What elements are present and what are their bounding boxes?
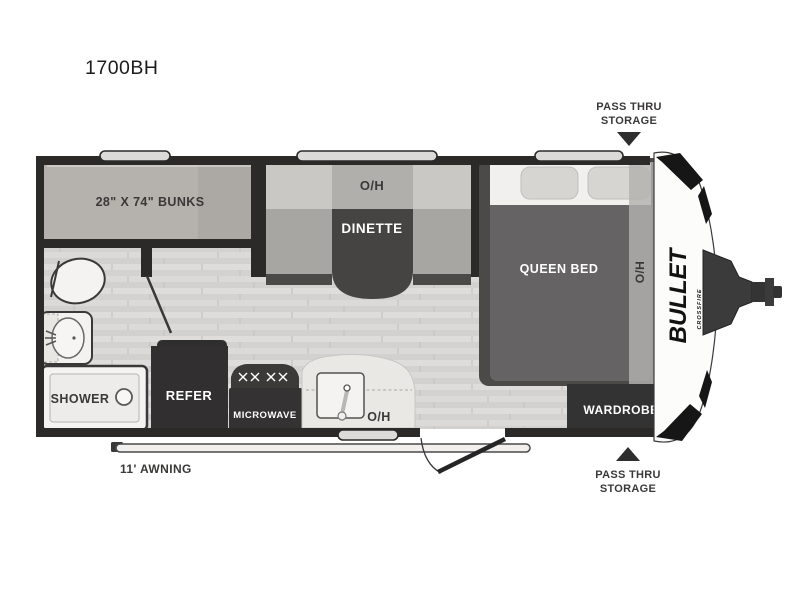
floorplan-svg: 1700BH PASS THRU STORAGE 28" X 74" BUNKS… bbox=[0, 0, 800, 600]
hitch bbox=[703, 250, 782, 335]
awning-label: 11' AWNING bbox=[120, 462, 192, 476]
page-title: 1700BH bbox=[85, 57, 158, 79]
dinette-label: DINETTE bbox=[341, 221, 402, 236]
bed-oh-label: O/H bbox=[633, 261, 647, 284]
dinette-oh-label: O/H bbox=[360, 178, 384, 193]
dinette-bench-front-left bbox=[266, 274, 332, 285]
pass-thru-callout-top: PASS THRU STORAGE bbox=[596, 101, 661, 146]
shower-drain bbox=[116, 389, 132, 405]
wall-bunks-dinette bbox=[251, 156, 266, 277]
pass-thru-top-line2: STORAGE bbox=[601, 115, 657, 127]
window-bunks bbox=[100, 151, 170, 161]
bed-mattress bbox=[490, 205, 651, 381]
microwave-label: MICROWAVE bbox=[233, 410, 296, 421]
wardrobe-label: WARDROBE bbox=[583, 403, 658, 417]
hitch-body bbox=[703, 250, 752, 335]
dinette-bench-front-right bbox=[413, 274, 471, 285]
arrow-down-icon bbox=[617, 132, 641, 146]
window-bed bbox=[535, 151, 623, 161]
arrow-up-icon bbox=[616, 447, 640, 461]
bunks-label: 28" X 74" BUNKS bbox=[96, 195, 205, 209]
window-kitchen bbox=[338, 430, 398, 440]
bunks-wall bbox=[36, 239, 262, 248]
brand-logo: BULLET bbox=[665, 246, 692, 343]
bed-pillow-left bbox=[521, 167, 578, 199]
dinette-bench-seat-right bbox=[413, 209, 471, 275]
queen-bed-label: QUEEN BED bbox=[520, 262, 599, 276]
dinette-bench-back-right bbox=[413, 161, 471, 209]
window-dinette bbox=[297, 151, 437, 161]
bath-wall-stub bbox=[141, 248, 152, 277]
refer-label: REFER bbox=[166, 388, 213, 403]
wall-left bbox=[36, 156, 44, 437]
bath-sink-drain bbox=[72, 336, 75, 339]
pass-thru-top-line1: PASS THRU bbox=[596, 101, 661, 113]
wall-bottom-right bbox=[505, 428, 665, 437]
hitch-ball bbox=[773, 286, 782, 298]
queen-bed-area: QUEEN BED O/H bbox=[479, 158, 668, 386]
floorplan-page: 1700BH PASS THRU STORAGE 28" X 74" BUNKS… bbox=[0, 0, 800, 600]
dinette-bench-back-left bbox=[266, 161, 332, 209]
pass-thru-callout-bottom: PASS THRU STORAGE bbox=[595, 447, 660, 495]
stove-hood bbox=[231, 364, 299, 390]
brand-series: CROSSFIRE bbox=[697, 288, 703, 329]
bunks-bed-shade bbox=[198, 161, 257, 241]
bath-sink bbox=[52, 318, 84, 358]
dinette-bench-seat-left bbox=[266, 209, 332, 275]
dinette-area: O/H DINETTE bbox=[266, 159, 471, 299]
shower-label: SHOWER bbox=[51, 392, 110, 406]
bunks-area: 28" X 74" BUNKS bbox=[36, 161, 262, 248]
awning-bar bbox=[116, 444, 530, 452]
pass-thru-bottom-line1: PASS THRU bbox=[595, 469, 660, 481]
hitch-coupler bbox=[765, 278, 774, 306]
pass-thru-bottom-line2: STORAGE bbox=[600, 483, 656, 495]
kitchen-sink bbox=[317, 373, 364, 418]
hitch-shaft bbox=[752, 282, 766, 302]
kitchen-oh-label: O/H bbox=[367, 410, 390, 424]
